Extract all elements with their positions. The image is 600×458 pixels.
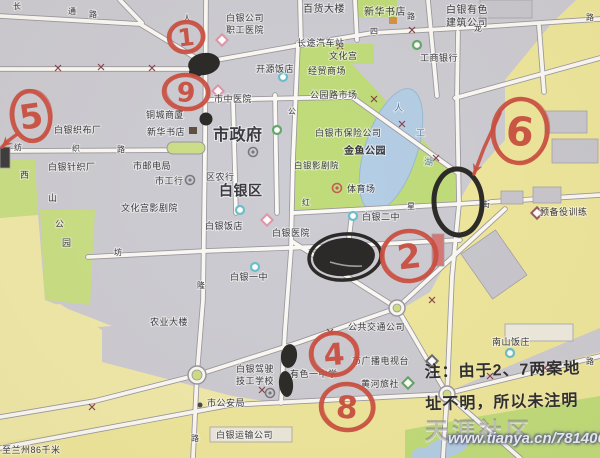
poi-dot-icon [198,403,203,408]
map-label: 经贸商场 [308,65,346,76]
map-label: 文化宫影剧院 [121,202,178,213]
poi-circle-icon [279,73,287,81]
map-label: 长途汽车站 [297,37,345,48]
poi-circle-icon [506,349,514,357]
map-label: 四 [370,27,379,36]
poi-target-dot [251,150,254,153]
v-275 [275,95,277,213]
black-ink-blob [200,113,213,126]
green-xishan-2 [0,160,38,218]
map-label: 区农行 [206,171,235,182]
case-number: 6 [504,108,536,157]
map-label: 纺 [14,142,23,152]
map-label: 市邮电局 [133,160,171,171]
map-label: 南山饭庄 [492,336,530,347]
case-number: 1 [176,23,196,53]
map-label: 公共交通公司 [348,321,405,332]
map-label: 园 [62,238,72,248]
poi-square-icon [189,127,197,134]
map-label: 市广播电视台 [352,355,409,366]
poi-target-dot [335,186,338,189]
map-label: 星 [407,202,416,211]
case-number: 9 [175,77,196,109]
map-label: 白银公司 [226,12,264,23]
map-label: 白银影剧院 [294,160,339,170]
map-label: 路 [191,433,200,443]
map-label: 市政府 [213,125,263,144]
map-label: 路 [407,11,416,21]
map-label: 白银运输公司 [216,429,273,440]
map-label: 新华书店 [147,126,185,137]
map-label: 铜城商厦 [146,109,184,120]
map-label: 黄河旅社 [361,378,399,389]
case-number: 2 [395,236,423,279]
poi-circle-icon [273,126,281,134]
map-label: 路 [117,144,126,154]
map-label: 新华书店 [364,5,406,18]
map-label: 开源饭店 [256,63,294,74]
map-label: 职工医院 [226,24,264,35]
baiyin-city-map-photo: 百货大楼新华书店白银有色建筑公司白银公司职工医院长途汽车站开源饭店市中医院文化宫… [0,0,600,458]
building-block [501,191,523,204]
road-median-green [167,142,205,154]
building-block [533,187,561,203]
map-label: 白银二中 [362,211,400,222]
map-label: 公 [288,107,297,116]
map-label: 白银驾驶 [236,363,274,374]
map-label: 湖 [424,157,434,167]
map-label: 白银区 [219,182,263,198]
roundabout-south-island [192,370,202,380]
map-label: 农业大楼 [150,316,188,327]
map-canvas: 百货大楼新华书店白银有色建筑公司白银公司职工医院长途汽车站开源饭店市中医院文化宫… [0,0,600,458]
map-label: 工 [416,128,426,138]
map-label: 长 [13,1,22,11]
poi-circle-icon [236,206,244,214]
map-label: 白银针织厂 [48,161,96,172]
map-label: 路 [586,12,595,22]
map-label: 路 [586,356,595,366]
roundabout-southeast-island [443,390,451,398]
map-label: 白银织布厂 [54,124,102,135]
building-block [552,139,598,163]
map-label: 坊 [114,247,123,257]
poi-circle-icon [413,41,421,49]
v-356-top [355,0,357,40]
building-block [0,147,10,168]
roundabout-gongjiao-island [393,304,401,312]
map-label: 龙 [474,23,483,33]
map-label: 市中医院 [214,93,252,104]
map-label: 织 [72,143,81,153]
map-label: 红 [302,197,311,207]
case-number: 8 [335,389,360,427]
map-label: 白银有色 [446,3,488,16]
map-label: 人 [394,103,404,113]
map-label: 路 [89,9,98,19]
map-label: 百货大楼 [303,2,345,15]
map-label: 山 [48,193,58,203]
poi-circle-icon [251,263,259,271]
map-label: 白银市保险公司 [315,127,382,138]
map-label: 通 [68,6,77,16]
map-label: 技工学校 [236,375,274,386]
map-label: 市公安局 [207,397,245,408]
map-label: 至兰州86千米 [2,444,61,455]
map-label: 市工行 [155,175,184,186]
building-block [545,111,587,133]
poi-circle-icon [349,212,357,220]
poi-square-icon [389,17,397,24]
case-number: 4 [322,337,345,373]
map-label: 公 [55,219,65,229]
poi-target-dot [268,391,271,394]
map-label: 西 [20,170,30,180]
map-label: 文化宫 [329,50,358,61]
map-label: 公园路市场 [310,89,358,100]
map-label: 金鱼公园 [343,144,386,157]
map-label: 白银饭店 [205,220,243,231]
poi-target-dot [188,178,191,181]
map-label: 隆 [197,280,206,290]
map-label: 预备役训练 [540,206,588,217]
map-label: 白银医院 [272,227,310,238]
map-label: 白银一中 [230,271,268,282]
map-label: 体育场 [347,183,376,194]
map-label: 工商银行 [420,52,458,63]
